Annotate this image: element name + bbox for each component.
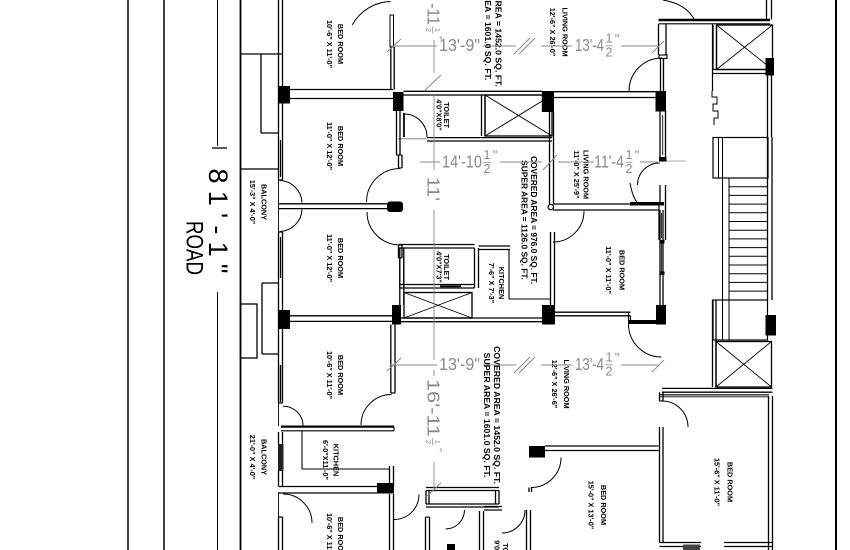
svg-text:7'-6" X 7'-3": 7'-6" X 7'-3" bbox=[487, 263, 496, 303]
svg-text:13'-4: 13'-4 bbox=[575, 35, 604, 55]
svg-text:KITCHEN: KITCHEN bbox=[332, 444, 341, 476]
svg-text:11'-0" X 12'-0": 11'-0" X 12'-0" bbox=[325, 122, 334, 170]
svg-text:21'-0" X 4'-0": 21'-0" X 4'-0" bbox=[248, 435, 257, 479]
svg-text:12'-6" X 26'-0": 12'-6" X 26'-0" bbox=[548, 8, 557, 57]
svg-text:15'-3" X 4'-0": 15'-3" X 4'-0" bbox=[248, 180, 257, 224]
svg-text:1: 1 bbox=[433, 28, 442, 32]
svg-text:LIVING ROOM: LIVING ROOM bbox=[561, 7, 570, 56]
svg-text:SUPER AREA = 1601.0 SQ. FT.: SUPER AREA = 1601.0 SQ. FT. bbox=[483, 0, 493, 80]
svg-text:11': 11' bbox=[424, 177, 444, 201]
svg-text:2: 2 bbox=[626, 162, 633, 176]
svg-text:BED ROOM: BED ROOM bbox=[336, 355, 345, 395]
svg-text:": " bbox=[635, 148, 640, 163]
svg-text:13'-9": 13'-9" bbox=[439, 354, 480, 374]
svg-text:1: 1 bbox=[606, 32, 613, 46]
svg-text:BED ROOM: BED ROOM bbox=[336, 126, 345, 166]
svg-text:": " bbox=[493, 148, 498, 163]
svg-text:13'-9": 13'-9" bbox=[439, 35, 480, 55]
svg-text:12'-6" X 26'-6": 12'-6" X 26'-6" bbox=[550, 360, 559, 409]
svg-text:1: 1 bbox=[484, 148, 491, 162]
svg-text:-11: -11 bbox=[424, 3, 444, 25]
svg-text:9'0"X4'0": 9'0"X4'0" bbox=[493, 540, 502, 550]
svg-text:LIVING ROOM: LIVING ROOM bbox=[562, 359, 571, 408]
svg-text:BED ROOM: BED ROOM bbox=[726, 462, 735, 502]
svg-text:SUPER AREA = 1126.0 SQ. FT.: SUPER AREA = 1126.0 SQ. FT. bbox=[520, 160, 530, 280]
svg-text:": " bbox=[432, 36, 443, 40]
svg-text:KITCHEN: KITCHEN bbox=[497, 267, 506, 299]
svg-text:15'-0" X 13'-0": 15'-0" X 13'-0" bbox=[587, 481, 596, 530]
svg-text:1: 1 bbox=[606, 351, 613, 365]
svg-text:2: 2 bbox=[424, 440, 433, 444]
svg-text:LIVING ROOM: LIVING ROOM bbox=[582, 150, 591, 199]
svg-text:10'-6" X 11'-0": 10'-6" X 11'-0" bbox=[325, 513, 334, 550]
svg-text:2: 2 bbox=[606, 364, 613, 378]
svg-text:1: 1 bbox=[433, 440, 442, 444]
svg-text:": " bbox=[615, 350, 620, 365]
svg-text:": " bbox=[615, 31, 620, 46]
svg-text:": " bbox=[432, 448, 443, 452]
svg-text:11'-4: 11'-4 bbox=[594, 152, 624, 172]
svg-text:2: 2 bbox=[484, 162, 491, 176]
svg-text:16'-11: 16'-11 bbox=[424, 379, 444, 437]
svg-text:2: 2 bbox=[424, 28, 433, 32]
svg-text:15'-6" X 11'-0": 15'-6" X 11'-0" bbox=[713, 458, 722, 506]
svg-text:2: 2 bbox=[606, 45, 613, 59]
svg-text:6'-0"X11'-0": 6'-0"X11'-0" bbox=[321, 440, 330, 480]
svg-text:BED ROOM: BED ROOM bbox=[336, 517, 345, 550]
svg-text:13'-4: 13'-4 bbox=[575, 354, 604, 374]
svg-text:BALCONY: BALCONY bbox=[260, 439, 269, 475]
svg-text:11'-0" X 12'-0": 11'-0" X 12'-0" bbox=[325, 234, 334, 282]
svg-text:BED ROOM: BED ROOM bbox=[599, 485, 608, 525]
svg-text:BED ROOM: BED ROOM bbox=[618, 250, 627, 290]
svg-text:BED ROOM: BED ROOM bbox=[336, 238, 345, 278]
svg-text:BED ROOM: BED ROOM bbox=[336, 24, 345, 64]
svg-text:10'-6" X 11'-0": 10'-6" X 11'-0" bbox=[325, 20, 334, 68]
svg-text:4'0"X7'3": 4'0"X7'3" bbox=[435, 251, 444, 283]
svg-text:11'-0" X 11'-0": 11'-0" X 11'-0" bbox=[604, 246, 613, 294]
svg-text:11'-0" X 25'-9": 11'-0" X 25'-9" bbox=[572, 150, 581, 198]
svg-text:14'-10: 14'-10 bbox=[442, 152, 482, 172]
svg-text:4'0"X8'0": 4'0"X8'0" bbox=[435, 99, 444, 131]
svg-text:COVERED AREA = 1452.0 SQ. FT.: COVERED AREA = 1452.0 SQ. FT. bbox=[494, 0, 504, 87]
svg-text:1: 1 bbox=[626, 148, 633, 162]
svg-text:BALCONY: BALCONY bbox=[260, 184, 269, 220]
svg-text:10'-6" X 11'-0": 10'-6" X 11'-0" bbox=[325, 351, 334, 399]
svg-text:COVERED AREA = 1452.0 SQ. FT.: COVERED AREA = 1452.0 SQ. FT. bbox=[492, 346, 502, 484]
svg-text:SUPER AREA = 1601.0 SQ. FT.: SUPER AREA = 1601.0 SQ. FT. bbox=[482, 353, 492, 478]
svg-text:COVERED AREA = 976.0 SQ. FT.: COVERED AREA = 976.0 SQ. FT. bbox=[529, 156, 539, 284]
